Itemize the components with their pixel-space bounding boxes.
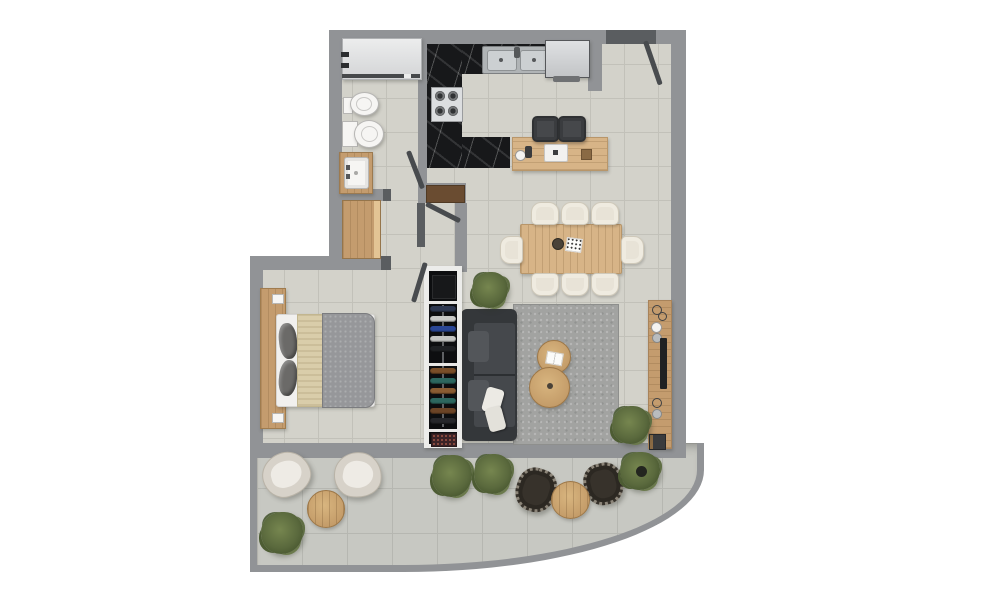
bar-stool bbox=[532, 116, 559, 142]
hanging-garment bbox=[430, 326, 456, 332]
drain-icon bbox=[532, 58, 536, 62]
hanging-garment bbox=[430, 336, 456, 342]
burner-icon bbox=[435, 106, 445, 116]
bidet-bowl-inner bbox=[356, 97, 372, 111]
built-in-cabinet bbox=[426, 185, 465, 203]
decor-ring-icon bbox=[658, 312, 667, 321]
vase-icon bbox=[547, 383, 553, 389]
shower-head-icon bbox=[341, 52, 349, 57]
dining-chair bbox=[500, 236, 523, 264]
refrigerator-handle bbox=[553, 76, 580, 82]
hanging-garment bbox=[430, 408, 456, 414]
drain-icon bbox=[354, 171, 358, 175]
dining-chair bbox=[591, 202, 619, 225]
wall-bedroom-top-cap bbox=[381, 256, 391, 270]
burner-icon bbox=[448, 106, 458, 116]
vase-icon bbox=[651, 322, 662, 333]
dining-chair bbox=[531, 273, 559, 296]
toilet-bowl bbox=[354, 120, 384, 148]
wardrobe-lower-rack bbox=[430, 368, 456, 428]
refrigerator bbox=[545, 40, 590, 78]
outside-area bbox=[250, 30, 329, 256]
centerpiece-card bbox=[565, 237, 583, 253]
laptop-logo-icon bbox=[553, 150, 558, 155]
wall-bathroom-cap bbox=[383, 189, 391, 201]
sofa bbox=[461, 309, 517, 441]
wall-hall-divider bbox=[417, 203, 425, 247]
book-stack bbox=[649, 434, 666, 450]
laptop bbox=[544, 144, 568, 162]
wall-entry-jamb bbox=[588, 44, 602, 91]
bar-stool bbox=[558, 116, 586, 142]
dining-chair bbox=[561, 202, 589, 225]
lounge-cushion bbox=[341, 459, 375, 491]
side-table bbox=[307, 490, 345, 528]
hanging-garment bbox=[430, 316, 456, 322]
decor-ring-icon bbox=[652, 398, 662, 408]
shower-glass-handle-gap bbox=[404, 74, 411, 78]
faucet-icon bbox=[346, 174, 350, 179]
hanging-garment bbox=[430, 398, 456, 404]
wall-hall-stub bbox=[455, 203, 467, 272]
faucet-icon bbox=[514, 47, 520, 58]
hanging-garment bbox=[430, 306, 456, 312]
nightstand-decor bbox=[272, 413, 284, 423]
wall-right bbox=[671, 30, 686, 458]
hanging-garment bbox=[430, 418, 456, 424]
burner-icon bbox=[448, 91, 458, 101]
open-book bbox=[545, 351, 564, 367]
wardrobe-divider bbox=[429, 301, 457, 304]
bidet-bowl bbox=[350, 92, 379, 116]
sofa-back-cushion bbox=[468, 331, 489, 362]
bed-duvet bbox=[322, 313, 375, 408]
wardrobe-divider bbox=[429, 429, 457, 432]
kitchen-counter-return bbox=[462, 137, 510, 168]
wardrobe-shelf-box bbox=[432, 275, 456, 299]
wall-bottom bbox=[250, 443, 686, 458]
toilet-bowl-inner bbox=[361, 126, 378, 142]
centerpiece-bowl bbox=[552, 238, 564, 250]
hanging-garment bbox=[430, 378, 456, 384]
dining-chair bbox=[591, 273, 619, 296]
wardrobe-storage-box bbox=[431, 433, 457, 447]
shower-control-icon bbox=[341, 63, 349, 68]
burner-icon bbox=[435, 91, 445, 101]
sofa-seat-split bbox=[474, 374, 515, 376]
tv-soundbar bbox=[660, 338, 667, 389]
cooktop bbox=[431, 87, 463, 122]
nightstand-decor bbox=[272, 294, 284, 304]
side-table bbox=[551, 481, 590, 519]
lounge-cushion bbox=[268, 457, 305, 490]
vanity-sink bbox=[344, 157, 369, 189]
hanging-garment bbox=[430, 388, 456, 394]
hanging-garment bbox=[430, 346, 456, 352]
dining-chair bbox=[531, 202, 559, 225]
wardrobe-upper-rack bbox=[430, 306, 456, 360]
hanging-garment bbox=[430, 368, 456, 374]
dining-chair bbox=[561, 273, 589, 296]
faucet-icon bbox=[346, 165, 350, 170]
floor-plan bbox=[0, 0, 1000, 600]
dining-chair bbox=[621, 236, 644, 264]
cup-icon bbox=[652, 409, 662, 419]
sink-basin-left bbox=[487, 50, 517, 71]
coffee-pot-icon bbox=[525, 146, 532, 158]
planter-box bbox=[581, 149, 592, 160]
drain-icon bbox=[499, 58, 503, 62]
plant-pot bbox=[636, 466, 647, 477]
coffee-table bbox=[529, 367, 570, 408]
wardrobe-divider bbox=[429, 363, 457, 366]
hall-cabinet bbox=[342, 200, 381, 259]
